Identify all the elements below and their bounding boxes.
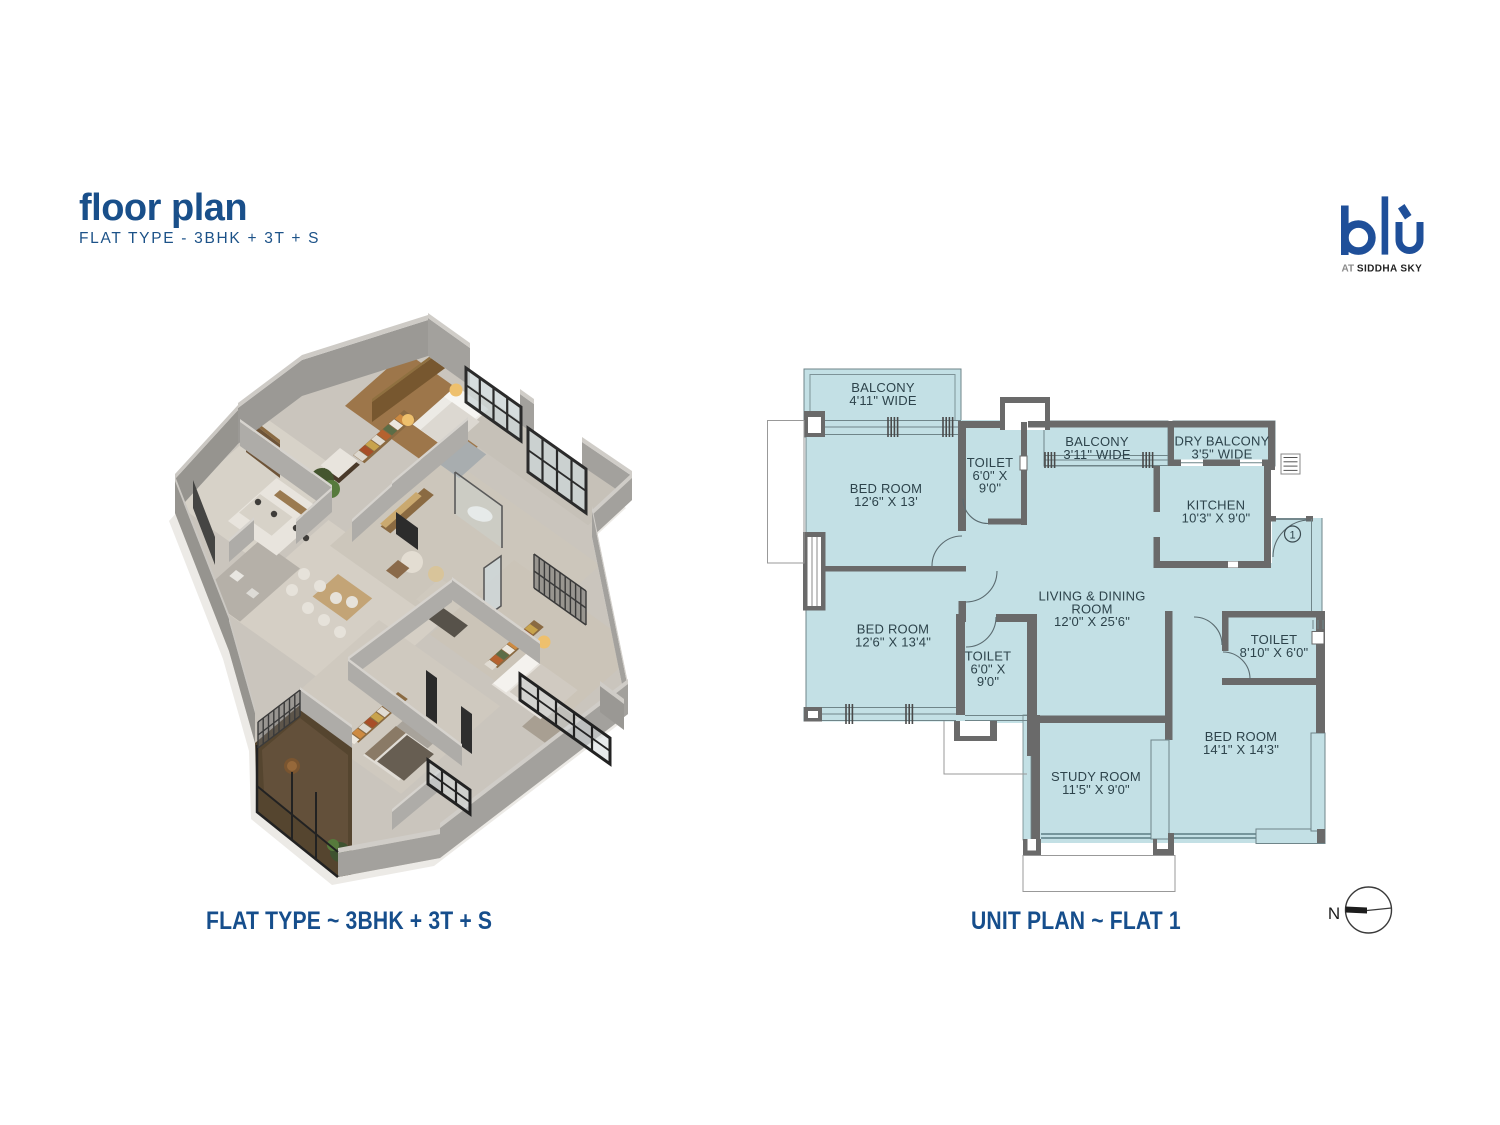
svg-text:N: N — [1328, 904, 1340, 923]
